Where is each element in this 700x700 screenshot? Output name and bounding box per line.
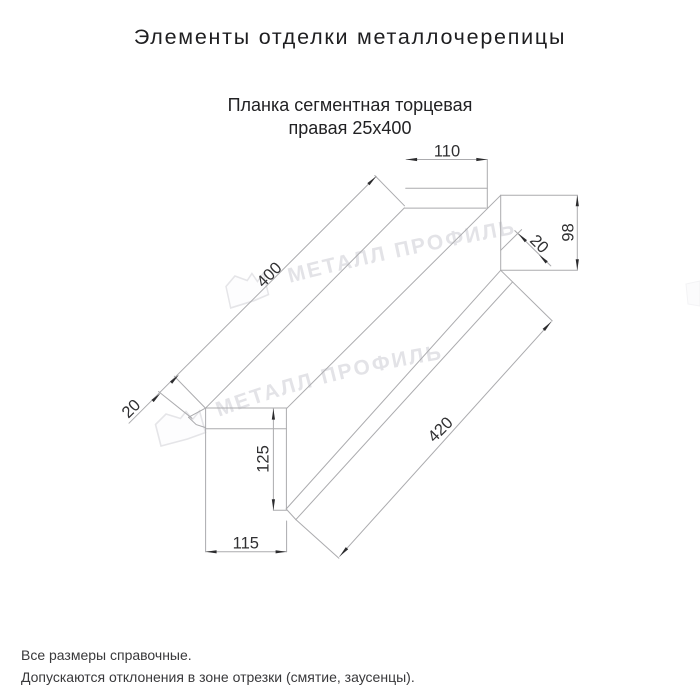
svg-text:98: 98 [559, 223, 577, 241]
svg-text:420: 420 [424, 414, 456, 446]
svg-text:МЕТАЛЛ ПРОФИЛЬ: МЕТАЛЛ ПРОФИЛЬ [285, 216, 518, 288]
svg-text:20: 20 [526, 231, 552, 257]
svg-text:125: 125 [255, 445, 273, 473]
svg-text:20: 20 [119, 396, 145, 422]
svg-text:115: 115 [233, 535, 259, 553]
svg-text:МЕТАЛЛ ПРОФИЛЬ: МЕТАЛЛ ПРОФИЛЬ [213, 341, 445, 421]
svg-text:110: 110 [434, 143, 460, 161]
